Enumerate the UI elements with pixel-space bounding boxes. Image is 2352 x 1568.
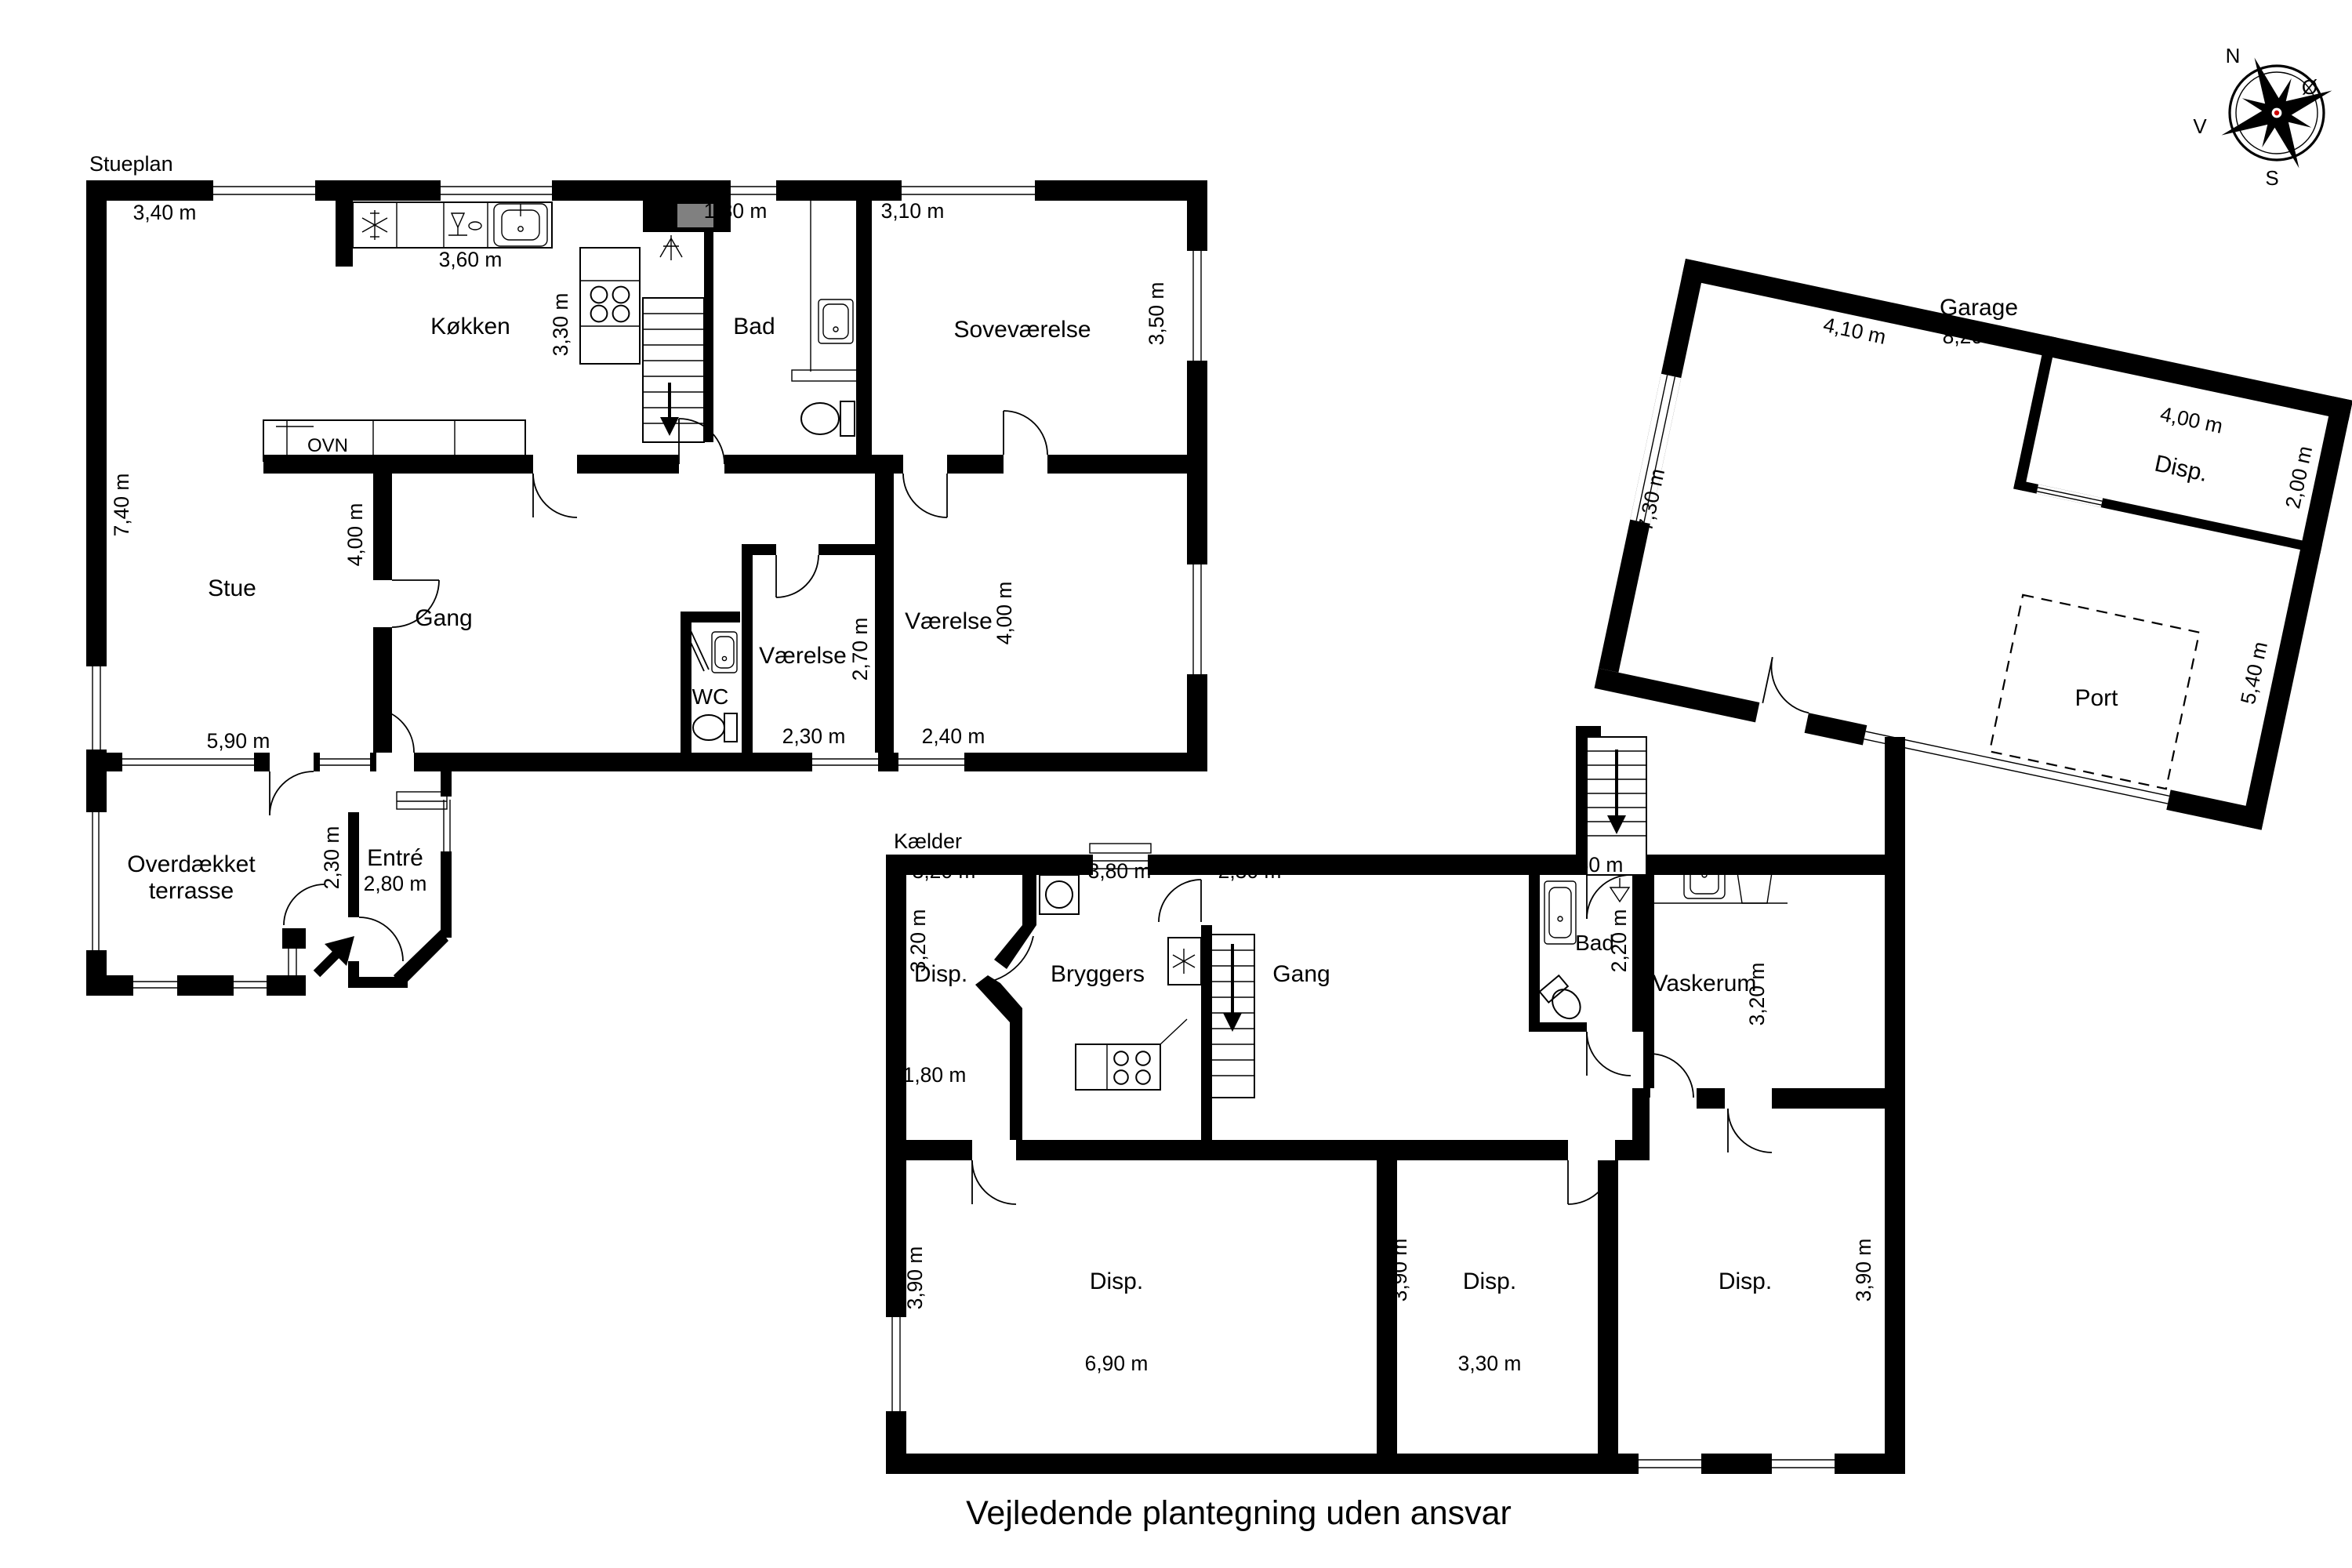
- antenna-icon: [660, 235, 682, 260]
- dim-label: 2,30 m: [1218, 859, 1282, 883]
- bad-fixtures: [792, 201, 861, 436]
- dim-label: 3,20 m: [1745, 963, 1769, 1026]
- dim-label: 3,90 m: [1388, 1239, 1411, 1302]
- dim-label: 4,00 m: [2158, 402, 2225, 438]
- room-label-bryggers: Bryggers: [1051, 961, 1145, 987]
- room-label-bad: Bad: [733, 314, 775, 339]
- window: [122, 753, 254, 771]
- kaelder-fixtures: [1040, 737, 1788, 1098]
- room-label-disp3: Disp.: [1463, 1269, 1516, 1294]
- door-arc: [776, 555, 818, 597]
- room-label-kokken: Køkken: [430, 314, 510, 339]
- shower-base: [792, 370, 861, 381]
- sink-icon: [494, 204, 547, 246]
- room-label-vaskerum: Vaskerum: [1653, 971, 1757, 996]
- window: [902, 180, 1035, 201]
- window: [89, 812, 103, 950]
- kaelder-title: Kælder: [894, 829, 962, 853]
- room-label-wc: WC: [692, 684, 729, 709]
- window: [1639, 1454, 1701, 1474]
- dim-label: 5,90 m: [207, 729, 270, 753]
- window: [213, 180, 315, 201]
- window: [234, 982, 267, 988]
- room-label-entre: Entré: [367, 845, 423, 871]
- dim-label: 4,00 m: [993, 582, 1016, 645]
- garage-openings: [1595, 374, 2233, 804]
- bryggers-counter: [1076, 1019, 1187, 1090]
- window: [133, 982, 177, 988]
- kaelder-section: Kælder: [886, 726, 1905, 1474]
- room-label-stue: Stue: [208, 575, 256, 601]
- room-label-garage-disp: Disp.: [2152, 451, 2210, 487]
- room-label-disp4: Disp.: [1719, 1269, 1772, 1294]
- window: [441, 180, 552, 201]
- dim-label: 2,40 m: [922, 724, 985, 748]
- toilet-icon: [693, 713, 737, 742]
- door-arc: [1004, 411, 1047, 455]
- dim-label: 2,20 m: [1607, 909, 1631, 973]
- room-label-vaerelse1: Værelse: [759, 643, 847, 669]
- wc-fixtures: [684, 626, 737, 742]
- window: [898, 753, 964, 771]
- dim-label: 3,20 m: [913, 859, 976, 883]
- dim-label: 3,30 m: [549, 293, 572, 357]
- room-label-garage: Garage: [1940, 295, 2018, 321]
- stueplan-windows: [86, 180, 1207, 771]
- dim-label: 3,40 m: [133, 201, 197, 224]
- dim-label: 4,00 m: [343, 503, 367, 567]
- room-label-disp1: Disp.: [914, 961, 967, 987]
- door-arc: [359, 917, 403, 961]
- window: [1187, 564, 1207, 674]
- dim-label: 2,30 m: [782, 724, 846, 748]
- dim-label: 3,80 m: [1088, 859, 1152, 883]
- washing-machine-icon: [1040, 875, 1079, 914]
- kaelder-walls: [886, 726, 1905, 1474]
- dim-label: 3,90 m: [1852, 1239, 1875, 1302]
- window: [812, 753, 878, 771]
- dim-label: 2,70 m: [848, 618, 872, 681]
- door-arc: [270, 771, 314, 815]
- floor-plan-svg: Stueplan: [0, 0, 2352, 1568]
- door-arc: [533, 474, 577, 517]
- stueplan-title: Stueplan: [89, 152, 173, 176]
- window: [86, 666, 107, 750]
- dim-label: 2,80 m: [364, 872, 427, 895]
- floor-plan-page: Stueplan: [0, 0, 2352, 1568]
- room-label-vaerelse2: Værelse: [905, 608, 993, 634]
- room-label-port: Port: [2074, 685, 2118, 711]
- window: [886, 1317, 906, 1411]
- dim-label: 8,20 m: [1943, 325, 2006, 348]
- room-label-gang: Gang: [415, 605, 472, 631]
- compass-west-label: V: [2193, 114, 2207, 138]
- door-arc: [1650, 1054, 1693, 1098]
- dim-label: 5,40 m: [2236, 640, 2272, 706]
- garage-section: 4,10 m 4,00 m Disp. 2,00 m 7,30 m 5,40 m…: [1595, 259, 2352, 830]
- door-gap: [376, 753, 414, 771]
- freezer-icon: [1168, 938, 1201, 985]
- room-label-terrasse: Overdækket: [127, 851, 256, 877]
- door-arc: [903, 474, 947, 517]
- dim-label: 3,50 m: [1145, 282, 1168, 346]
- dim-label: 7,40 m: [110, 474, 133, 537]
- toilet-icon: [801, 401, 855, 436]
- compass-east-label: Ø: [2302, 75, 2318, 99]
- door-arc: [1728, 1109, 1772, 1152]
- dim-label: 1,50 m: [1560, 853, 1624, 877]
- wardrobe: [397, 792, 447, 809]
- dim-label: 3,90 m: [903, 1247, 927, 1310]
- stairs-basement-internal: [1209, 935, 1254, 1098]
- compass-center-dot: [2274, 111, 2279, 115]
- window: [320, 753, 370, 771]
- stove-icon: [591, 287, 630, 322]
- door-arc: [1159, 880, 1201, 922]
- room-label-sovevaerelse: Soveværelse: [953, 317, 1091, 343]
- window: [1772, 1454, 1835, 1474]
- dim-label: 3,30 m: [1458, 1352, 1522, 1375]
- washbasin-icon: [818, 299, 853, 343]
- dim-label: 2,30 m: [320, 826, 343, 890]
- fridge-icon: [362, 210, 387, 240]
- stairs-ground: [643, 298, 704, 442]
- stueplan-walls: [86, 180, 1207, 771]
- stove-icon: [1114, 1051, 1150, 1084]
- dishwasher-icon: [448, 213, 481, 235]
- window: [1187, 251, 1207, 361]
- door-arc: [284, 884, 325, 925]
- washbasin-icon: [712, 632, 737, 673]
- kaelder-labels: 3,20 m 3,20 m Disp. 3,80 m Bryggers 2,30…: [903, 853, 1875, 1375]
- dim-label: 6,90 m: [1085, 1352, 1149, 1375]
- dim-label: 1,80 m: [704, 199, 768, 223]
- room-label-terrasse2: terrasse: [149, 878, 234, 904]
- room-label-disp2: Disp.: [1090, 1269, 1143, 1294]
- door-arc: [972, 1160, 1016, 1204]
- compass-north-label: N: [2226, 44, 2241, 67]
- shower-icon: [1610, 878, 1629, 902]
- door-arc: [1587, 1032, 1631, 1076]
- oven-label: OVN: [307, 435, 348, 456]
- compass-rose: N Ø S V: [2193, 35, 2352, 191]
- stueplan-inner-walls: [263, 201, 1187, 753]
- room-label-gang-k: Gang: [1272, 961, 1330, 987]
- door-gap: [270, 753, 314, 771]
- window: [289, 949, 296, 975]
- dim-label: 3,10 m: [881, 199, 945, 223]
- compass-south-label: S: [2265, 166, 2278, 190]
- dim-label: 1,80 m: [903, 1063, 967, 1087]
- toilet-icon: [1540, 975, 1586, 1024]
- disclaimer-caption: Vejledende plantegning uden ansvar: [966, 1494, 1512, 1532]
- dim-label: 7,30 m: [1633, 466, 1669, 533]
- window: [2036, 485, 2103, 507]
- dim-label: 3,60 m: [439, 248, 503, 271]
